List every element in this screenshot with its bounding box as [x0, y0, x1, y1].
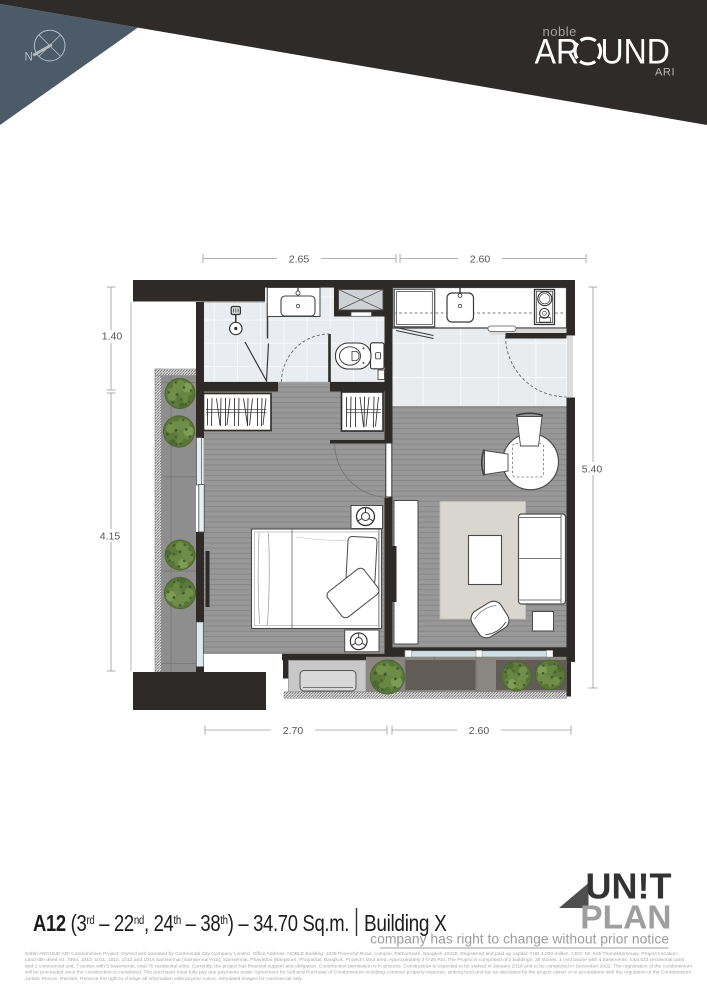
- svg-text:2.65: 2.65: [289, 254, 310, 266]
- svg-text:4.15: 4.15: [100, 531, 121, 543]
- svg-text:2.60: 2.60: [470, 254, 491, 266]
- svg-text:Juristic Person. Remark: Reser: Juristic Person. Remark: Reserve the rig…: [25, 976, 303, 982]
- svg-text:and 1 commercial unit, 7 stori: and 1 commercial unit, 7 stories with 5 …: [25, 963, 692, 969]
- svg-text:2.60: 2.60: [469, 725, 490, 737]
- svg-text:Land title deed no. 7864, 1010: Land title deed no. 7864, 1010, 1011, 10…: [25, 957, 685, 963]
- svg-text:N: N: [25, 52, 33, 64]
- svg-text:will be proceeded once the con: will be proceeded once the construction …: [25, 970, 691, 976]
- svg-text:PLAN: PLAN: [580, 900, 671, 937]
- svg-text:2.70: 2.70: [283, 725, 304, 737]
- svg-text:1.40: 1.40: [102, 331, 123, 343]
- svg-text:A12 (3rd – 22nd, 24th – 38th): A12 (3rd – 22nd, 24th – 38th) – 34.70 Sq…: [33, 911, 349, 937]
- svg-text:Noble AROUND ARI Condominium P: Noble AROUND ARI Condominium Project: Ow…: [25, 951, 678, 957]
- svg-text:ARI: ARI: [655, 67, 675, 79]
- svg-text:5.40: 5.40: [582, 464, 603, 476]
- svg-text:AR: AR: [535, 33, 579, 72]
